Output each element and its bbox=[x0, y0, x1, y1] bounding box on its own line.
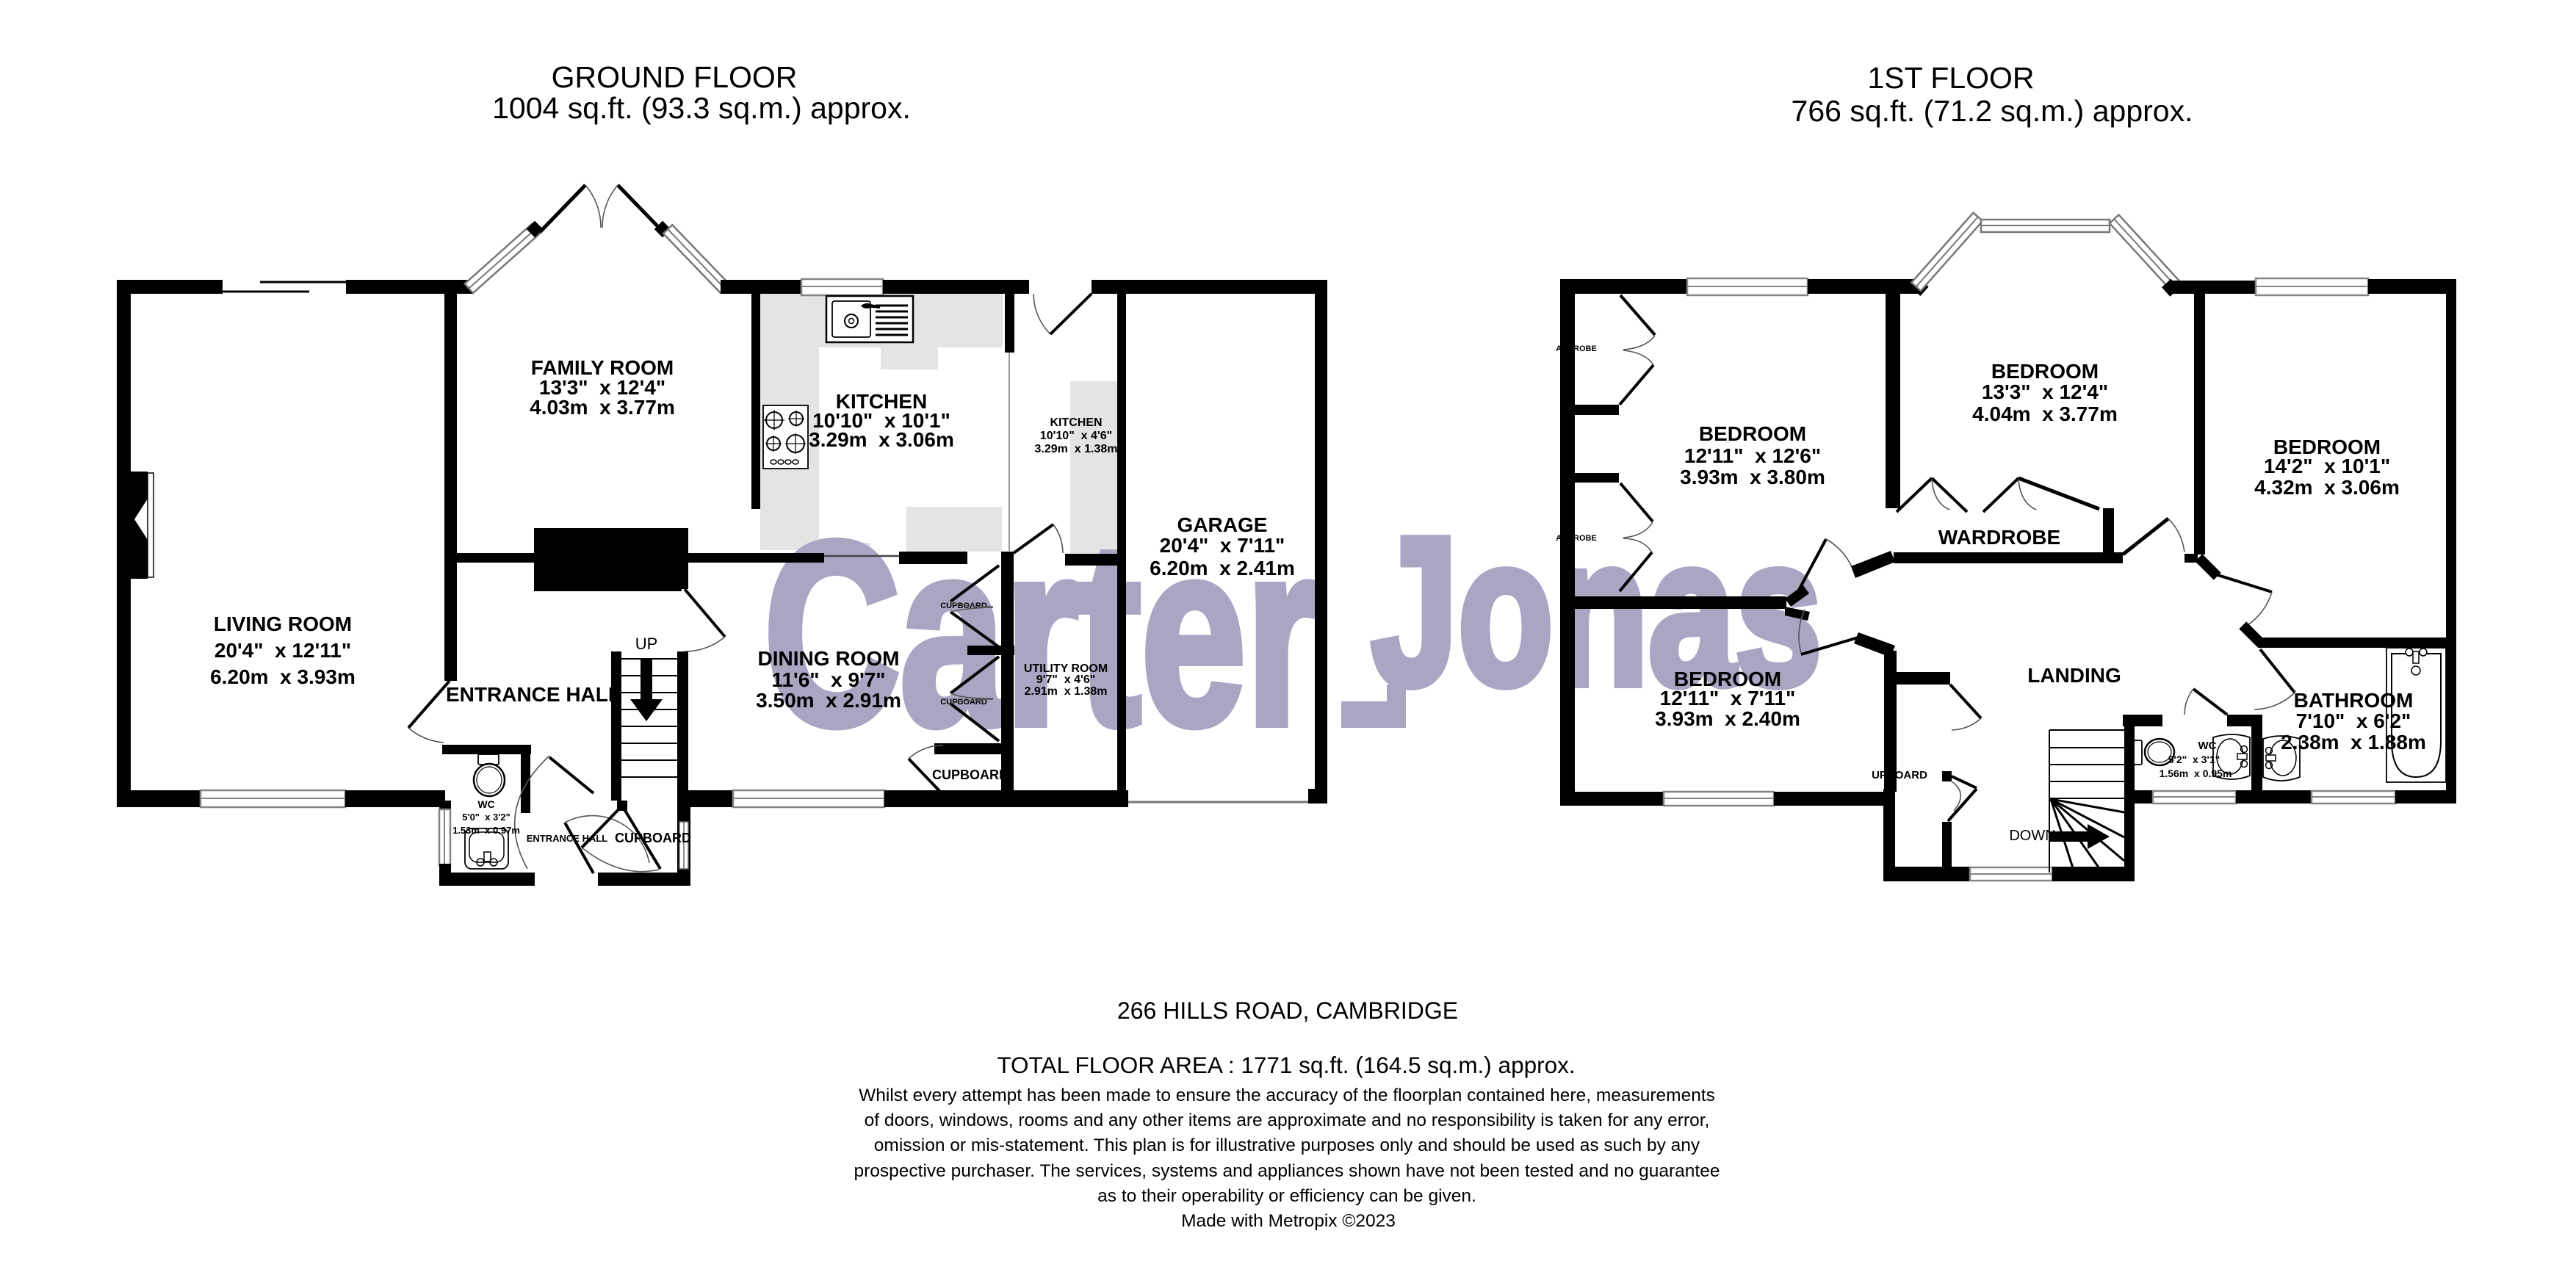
svg-text:omission or mis-statement. Thi: omission or mis-statement. This plan is … bbox=[874, 1135, 1700, 1155]
svg-text:7'10" x 6'2": 7'10" x 6'2" bbox=[2296, 709, 2411, 732]
svg-text:GROUND FLOOR: GROUND FLOOR bbox=[552, 60, 798, 94]
svg-text:ARDROBE: ARDROBE bbox=[1556, 534, 1597, 543]
svg-text:1ST FLOOR: 1ST FLOOR bbox=[1867, 61, 2034, 95]
svg-text:ENTRANCE HALL: ENTRANCE HALL bbox=[446, 683, 621, 706]
svg-text:GARAGE: GARAGE bbox=[1177, 513, 1268, 536]
svg-text:ENTRANCE HALL: ENTRANCE HALL bbox=[527, 833, 608, 844]
svg-text:1.56m x 0.95m: 1.56m x 0.95m bbox=[2160, 768, 2232, 779]
svg-text:DOWN: DOWN bbox=[2009, 828, 2055, 844]
svg-text:CUPBOARD: CUPBOARD bbox=[932, 768, 1009, 782]
svg-text:prospective purchaser. The ser: prospective purchaser. The services, sys… bbox=[854, 1161, 1720, 1181]
svg-text:ARDROBE: ARDROBE bbox=[1556, 344, 1597, 353]
svg-text:3.29m x 3.06m: 3.29m x 3.06m bbox=[809, 428, 954, 451]
svg-text:11'6" x 9'7": 11'6" x 9'7" bbox=[771, 668, 885, 691]
svg-text:9'7" x 4'6": 9'7" x 4'6" bbox=[1036, 673, 1096, 686]
svg-text:20'4" x 7'11": 20'4" x 7'11" bbox=[1160, 534, 1285, 557]
svg-text:3.29m x 1.38m: 3.29m x 1.38m bbox=[1035, 443, 1118, 455]
svg-text:20'4" x 12'11": 20'4" x 12'11" bbox=[214, 639, 351, 662]
svg-text:LANDING: LANDING bbox=[2027, 664, 2121, 687]
svg-text:3.50m x 2.91m: 3.50m x 2.91m bbox=[756, 689, 901, 712]
svg-text:766 sq.ft. (71.2 sq.m.) approx: 766 sq.ft. (71.2 sq.m.) approx. bbox=[1792, 94, 2193, 128]
svg-text:3.93m x 2.40m: 3.93m x 2.40m bbox=[1655, 707, 1800, 730]
svg-text:UPBOARD: UPBOARD bbox=[1872, 769, 1927, 781]
svg-text:4.03m x 3.77m: 4.03m x 3.77m bbox=[530, 396, 675, 419]
svg-text:Made with Metropix ©2023: Made with Metropix ©2023 bbox=[1181, 1211, 1396, 1231]
svg-text:5'0" x 3'2": 5'0" x 3'2" bbox=[462, 812, 510, 823]
svg-text:4.04m x 3.77m: 4.04m x 3.77m bbox=[1972, 402, 2118, 425]
svg-text:6.20m x 2.41m: 6.20m x 2.41m bbox=[1150, 557, 1295, 579]
svg-text:6.20m x 3.93m: 6.20m x 3.93m bbox=[210, 665, 356, 688]
svg-text:Whilst every attempt has been: Whilst every attempt has been made to en… bbox=[859, 1086, 1715, 1105]
svg-text:12'11" x 12'6": 12'11" x 12'6" bbox=[1684, 444, 1821, 467]
svg-text:266 HILLS ROAD, CAMBRIDGE: 266 HILLS ROAD, CAMBRIDGE bbox=[1117, 997, 1458, 1024]
svg-text:WC: WC bbox=[477, 798, 494, 810]
svg-text:WARDROBE: WARDROBE bbox=[1938, 526, 2060, 549]
svg-text:4.32m x 3.06m: 4.32m x 3.06m bbox=[2254, 476, 2400, 499]
svg-text:2.38m x 1.88m: 2.38m x 1.88m bbox=[2281, 731, 2426, 754]
svg-text:BATHROOM: BATHROOM bbox=[2294, 689, 2414, 712]
svg-text:2.91m x 1.38m: 2.91m x 1.38m bbox=[1025, 685, 1108, 698]
svg-text:5'2" x 3'1": 5'2" x 3'1" bbox=[2168, 754, 2220, 765]
svg-text:DINING ROOM: DINING ROOM bbox=[758, 647, 900, 670]
svg-text:TOTAL FLOOR AREA : 1771 sq.ft.: TOTAL FLOOR AREA : 1771 sq.ft. (164.5 sq… bbox=[997, 1052, 1575, 1078]
svg-text:of doors, windows, rooms and a: of doors, windows, rooms and any other i… bbox=[865, 1110, 1710, 1130]
svg-text:13'3" x 12'4": 13'3" x 12'4" bbox=[1982, 380, 2108, 403]
svg-text:CUPBOARD: CUPBOARD bbox=[940, 698, 987, 707]
svg-text:14'2" x 10'1": 14'2" x 10'1" bbox=[2264, 455, 2390, 477]
svg-text:CUPBOARD: CUPBOARD bbox=[615, 831, 691, 845]
svg-text:12'11" x 7'11": 12'11" x 7'11" bbox=[1660, 687, 1796, 709]
svg-text:10'10" x 4'6": 10'10" x 4'6" bbox=[1040, 430, 1112, 442]
svg-text:BEDROOM: BEDROOM bbox=[1991, 360, 2099, 383]
svg-text:UP: UP bbox=[635, 635, 658, 653]
svg-text:1004 sq.ft. (93.3 sq.m.) appro: 1004 sq.ft. (93.3 sq.m.) approx. bbox=[492, 91, 911, 125]
svg-text:3.93m x 3.80m: 3.93m x 3.80m bbox=[1680, 466, 1825, 488]
svg-text:BEDROOM: BEDROOM bbox=[1699, 422, 1806, 445]
svg-text:LIVING ROOM: LIVING ROOM bbox=[214, 613, 352, 635]
svg-text:KITCHEN: KITCHEN bbox=[1050, 416, 1102, 429]
svg-text:1.53m x 0.97m: 1.53m x 0.97m bbox=[452, 825, 520, 836]
svg-text:WC: WC bbox=[2198, 740, 2217, 752]
svg-text:as to their operability or eff: as to their operability or efficiency ca… bbox=[1097, 1186, 1476, 1206]
